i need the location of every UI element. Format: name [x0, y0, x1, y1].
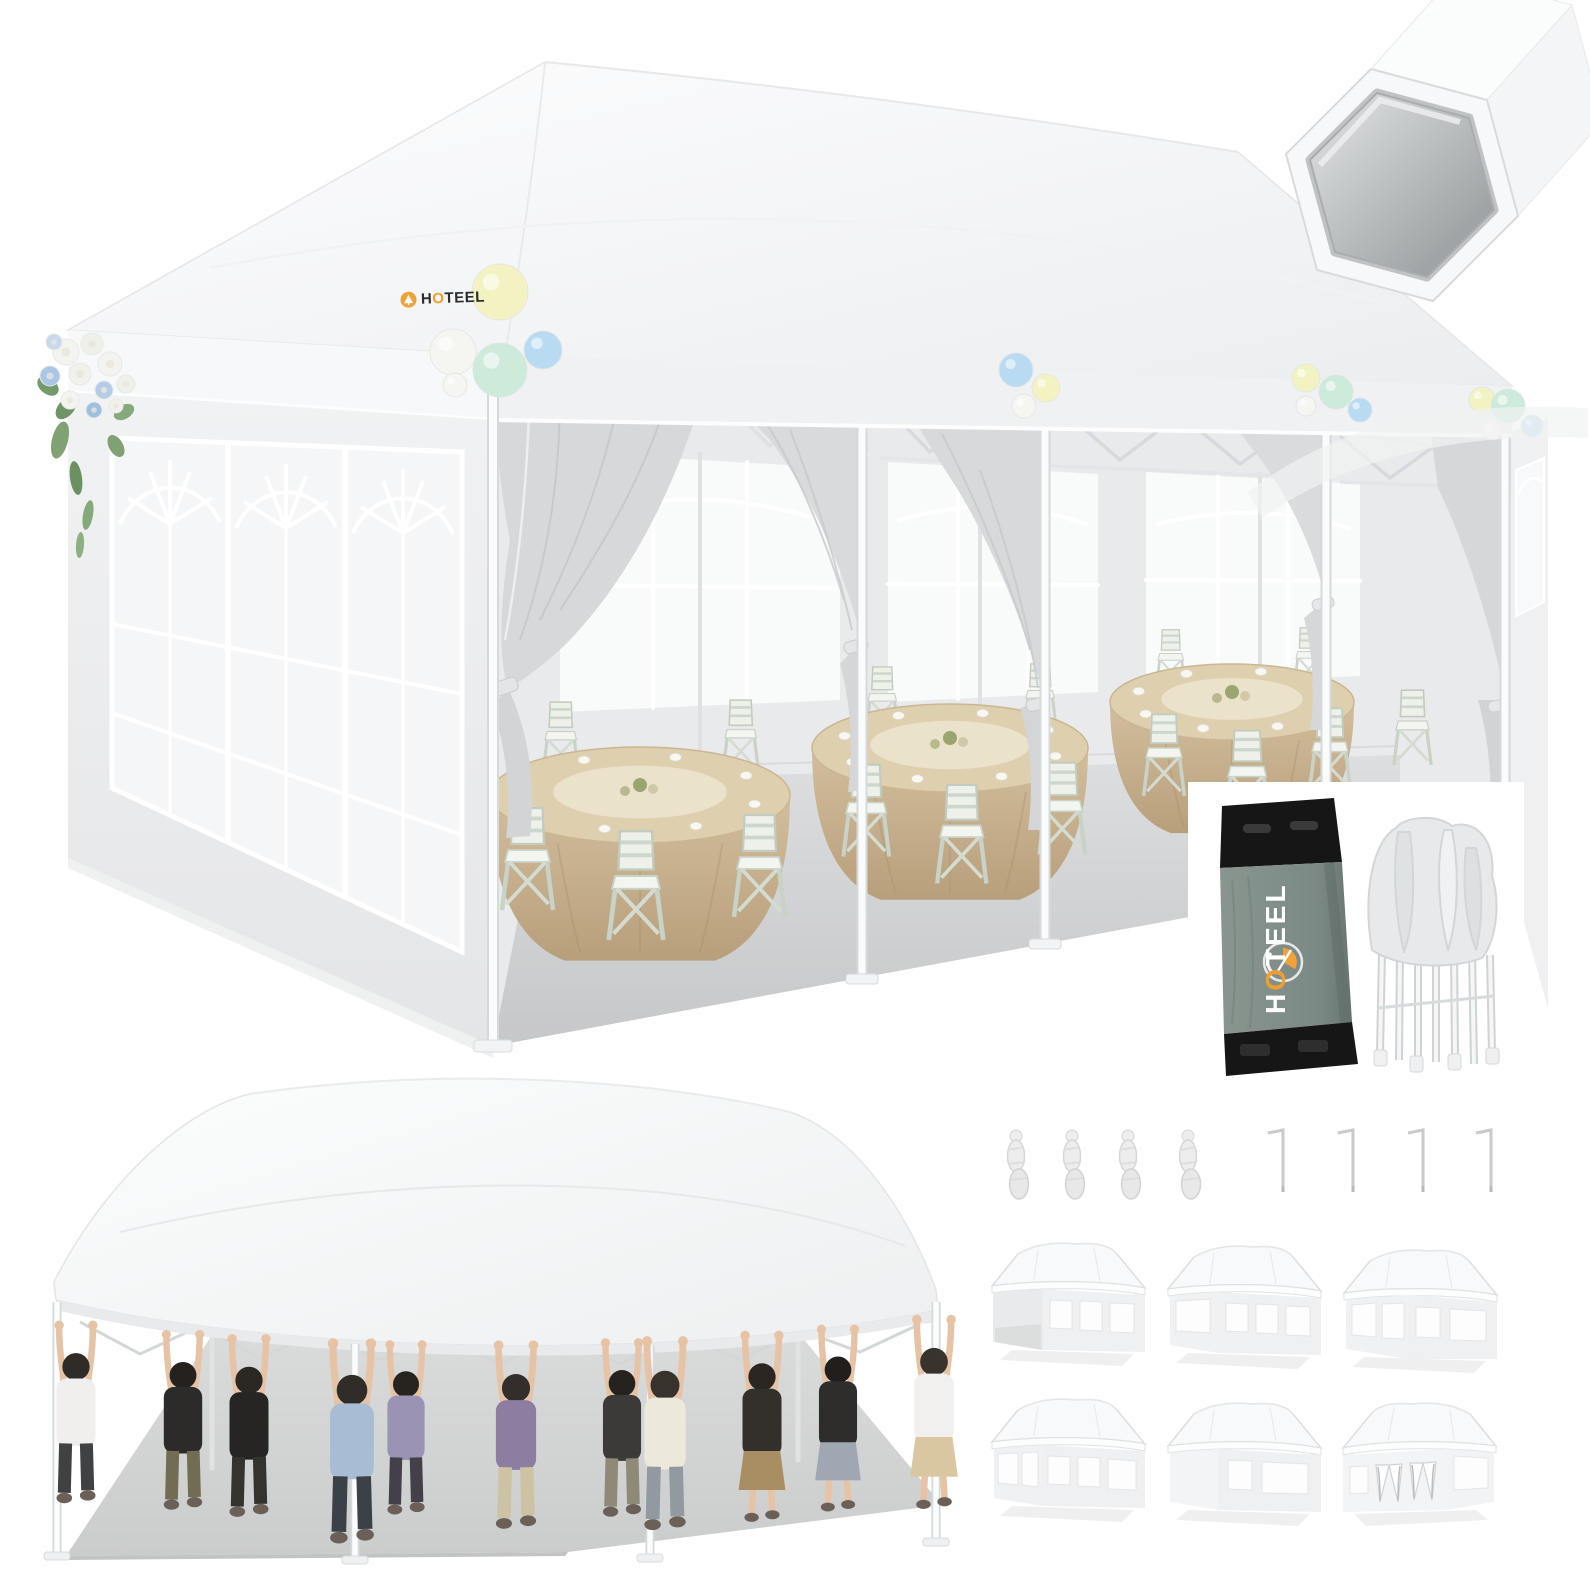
variant-thumbnail-solid-end [1168, 1403, 1321, 1526]
variant-thumbnail-enclosed-b [1344, 1250, 1497, 1373]
collage-artwork [0, 0, 1590, 1590]
left-end-sidewall [68, 392, 493, 1058]
guy-ropes [1008, 1130, 1201, 1199]
rope-bundle [1180, 1130, 1201, 1199]
ground-stake [1338, 1130, 1353, 1192]
variant-thumbnail-enclosed [1168, 1246, 1321, 1369]
rope-bundle [1120, 1130, 1141, 1199]
variant-thumbnail-windows-all [992, 1399, 1145, 1522]
product-image-collage: HOTEEL HOTEEL [0, 0, 1590, 1590]
demo-roof [54, 1079, 938, 1346]
ground-stake [1408, 1130, 1423, 1192]
ground-stake [1268, 1130, 1283, 1192]
variant-thumbnail-curtain-doors [1343, 1403, 1496, 1526]
rope-bundle [1008, 1130, 1029, 1199]
tent-brand-logo: HOTEEL [400, 289, 485, 309]
bag-brand-text: HOTEEL [1260, 882, 1292, 1014]
ground-stake [1476, 1130, 1491, 1192]
hanging-person [54, 1320, 97, 1503]
rope-bundle [1064, 1130, 1085, 1199]
strength-demo-tent [44, 1079, 958, 1564]
bag-brand-logo: HOTEEL [1258, 836, 1294, 1014]
variant-thumbnail-open-end [992, 1243, 1145, 1366]
brand-sun-icon [400, 291, 418, 309]
sidewall-configuration-thumbnails [992, 1243, 1497, 1526]
tent-brand-text: HOTEEL [421, 289, 485, 308]
ground-stakes [1268, 1130, 1491, 1192]
